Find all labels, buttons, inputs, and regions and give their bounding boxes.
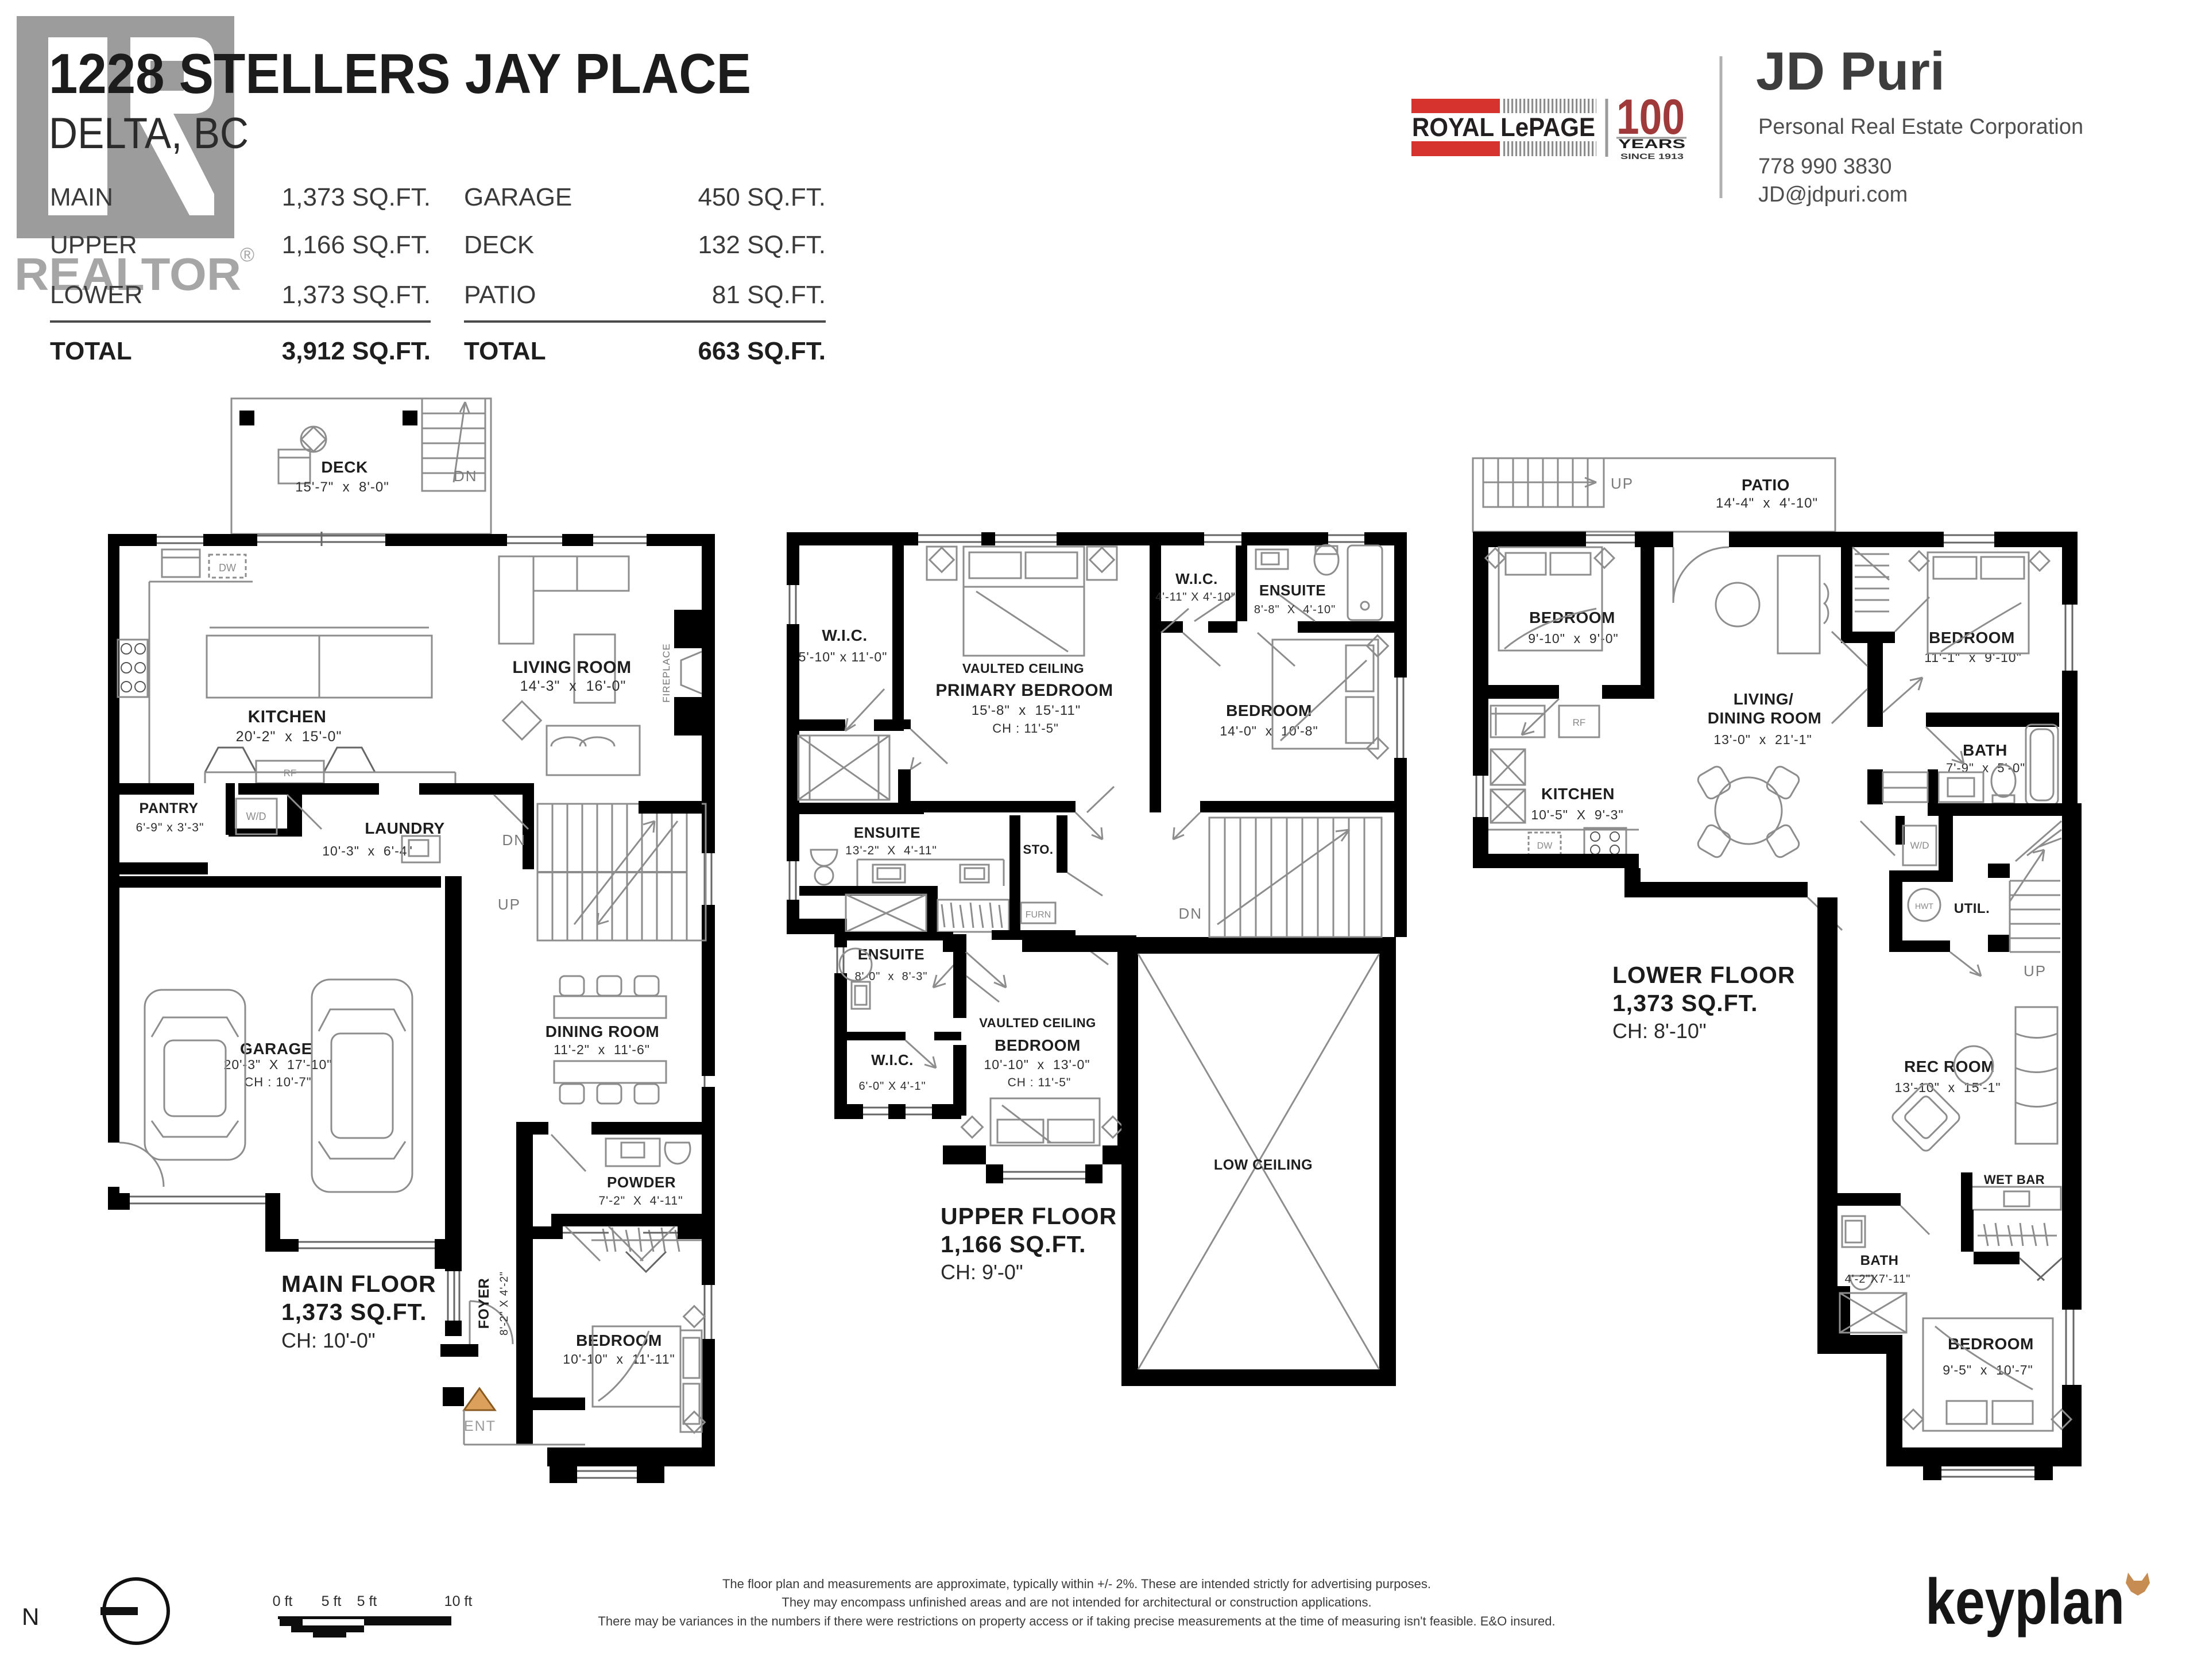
- svg-text:0 ft: 0 ft: [273, 1593, 293, 1609]
- svg-text:MAIN: MAIN: [50, 183, 113, 211]
- svg-text:JD@jdpuri.com: JD@jdpuri.com: [1758, 183, 1908, 207]
- svg-text:DECK: DECK: [321, 458, 367, 476]
- svg-text:DW: DW: [1537, 841, 1553, 851]
- svg-text:FURN: FURN: [1026, 910, 1051, 920]
- svg-text:N: N: [22, 1603, 39, 1630]
- svg-text:CH : 11'-5": CH : 11'-5": [992, 721, 1059, 736]
- svg-text:LOWER: LOWER: [50, 281, 142, 309]
- svg-text:®: ®: [240, 244, 254, 266]
- svg-text:There may be variances in the: There may be variances in the numbers if…: [598, 1614, 1555, 1628]
- svg-text:1228 STELLERS JAY PLACE: 1228 STELLERS JAY PLACE: [49, 42, 751, 105]
- svg-text:5 ft: 5 ft: [357, 1593, 377, 1609]
- svg-text:1,166 SQ.FT.: 1,166 SQ.FT.: [282, 231, 431, 259]
- svg-text:1,166 SQ.FT.: 1,166 SQ.FT.: [941, 1231, 1086, 1257]
- svg-text:keyplan: keyplan: [1925, 1566, 2125, 1638]
- svg-text:DW: DW: [219, 562, 236, 574]
- svg-text:PATIO: PATIO: [1742, 476, 1790, 494]
- svg-text:PANTRY: PANTRY: [140, 800, 199, 816]
- svg-text:1,373 SQ.FT.: 1,373 SQ.FT.: [282, 183, 431, 211]
- svg-text:The floor plan and measurement: The floor plan and measurements are appr…: [722, 1577, 1431, 1591]
- svg-text:6'-0" X 4'-1": 6'-0" X 4'-1": [858, 1080, 926, 1093]
- svg-text:FIREPLACE: FIREPLACE: [661, 643, 672, 702]
- svg-text:81 SQ.FT.: 81 SQ.FT.: [712, 281, 826, 309]
- svg-text:BEDROOM: BEDROOM: [576, 1331, 662, 1349]
- svg-text:11'-2" x 11'-6": 11'-2" x 11'-6": [554, 1042, 650, 1057]
- svg-text:8'-2" X 4'-2": 8'-2" X 4'-2": [498, 1271, 510, 1336]
- svg-text:UPPER FLOOR: UPPER FLOOR: [941, 1203, 1117, 1229]
- svg-text:BATH: BATH: [1963, 741, 2007, 759]
- svg-text:UPPER: UPPER: [50, 231, 137, 259]
- svg-text:TOTAL: TOTAL: [50, 337, 132, 365]
- svg-text:CH: 8'-10": CH: 8'-10": [1612, 1019, 1707, 1043]
- svg-text:W.I.C.: W.I.C.: [871, 1051, 914, 1069]
- svg-text:10 ft: 10 ft: [444, 1593, 473, 1609]
- svg-text:15'-8" x 15'-11": 15'-8" x 15'-11": [972, 703, 1081, 718]
- svg-text:1,373 SQ.FT.: 1,373 SQ.FT.: [1612, 990, 1758, 1016]
- svg-text:Personal Real Estate Corporati: Personal Real Estate Corporation: [1758, 115, 2083, 139]
- svg-text:450 SQ.FT.: 450 SQ.FT.: [698, 183, 826, 211]
- svg-text:LOWER FLOOR: LOWER FLOOR: [1612, 962, 1795, 988]
- svg-text:5 ft: 5 ft: [322, 1593, 342, 1609]
- svg-text:10'-5" X 9'-3": 10'-5" X 9'-3": [1531, 807, 1623, 822]
- svg-text:4'-2"X7'-11": 4'-2"X7'-11": [1845, 1273, 1911, 1286]
- svg-text:CH : 11'-5": CH : 11'-5": [1008, 1076, 1071, 1089]
- svg-text:MAIN FLOOR: MAIN FLOOR: [281, 1271, 436, 1297]
- svg-text:HWT: HWT: [1915, 901, 1933, 911]
- svg-text:7'-2" X 4'-11": 7'-2" X 4'-11": [598, 1194, 683, 1207]
- svg-text:SINCE 1913: SINCE 1913: [1620, 152, 1684, 161]
- svg-text:DELTA, BC: DELTA, BC: [49, 109, 249, 158]
- svg-text:UP: UP: [1611, 475, 1634, 492]
- svg-text:UTIL.: UTIL.: [1954, 901, 1990, 916]
- svg-text:DN: DN: [454, 467, 478, 485]
- svg-text:1,373 SQ.FT.: 1,373 SQ.FT.: [281, 1299, 427, 1325]
- svg-text:RF: RF: [1573, 717, 1586, 728]
- svg-text:BEDROOM: BEDROOM: [1226, 702, 1312, 719]
- svg-text:KITCHEN: KITCHEN: [248, 707, 327, 726]
- svg-text:POWDER: POWDER: [607, 1174, 676, 1191]
- svg-text:UP: UP: [498, 896, 521, 913]
- svg-text:DECK: DECK: [464, 231, 534, 259]
- svg-text:9'-5" x 10'-7": 9'-5" x 10'-7": [1943, 1362, 2033, 1377]
- svg-text:ENSUITE: ENSUITE: [854, 824, 920, 841]
- svg-text:CH: 10'-0": CH: 10'-0": [281, 1329, 376, 1352]
- svg-text:13'-0" x 21'-1": 13'-0" x 21'-1": [1713, 732, 1812, 747]
- svg-text:STO.: STO.: [1023, 842, 1054, 857]
- svg-text:LIVING ROOM: LIVING ROOM: [512, 658, 631, 677]
- svg-text:ENSUITE: ENSUITE: [1259, 582, 1326, 599]
- svg-text:ENT: ENT: [464, 1418, 496, 1434]
- svg-text:W.I.C.: W.I.C.: [822, 626, 867, 644]
- svg-text:CH : 10'-7": CH : 10'-7": [244, 1075, 311, 1089]
- svg-text:3,912 SQ.FT.: 3,912 SQ.FT.: [282, 337, 431, 365]
- svg-text:DINING ROOM: DINING ROOM: [1708, 709, 1821, 727]
- svg-text:YEARS: YEARS: [1618, 137, 1685, 151]
- svg-text:CH: 9'-0": CH: 9'-0": [941, 1260, 1023, 1284]
- svg-text:20'-3" X 17'-10": 20'-3" X 17'-10": [224, 1057, 332, 1072]
- svg-text:14'-4" x 4'-10": 14'-4" x 4'-10": [1716, 496, 1818, 511]
- svg-text:10'-3" x 6'-4": 10'-3" x 6'-4": [322, 843, 412, 858]
- svg-text:4'-11" X 4'-10": 4'-11" X 4'-10": [1155, 591, 1236, 603]
- svg-text:DN: DN: [502, 831, 526, 849]
- svg-text:VAULTED CEILING: VAULTED CEILING: [979, 1016, 1096, 1030]
- svg-text:6'-9" x 3'-3": 6'-9" x 3'-3": [136, 821, 204, 834]
- svg-text:They may encompass unfinished: They may encompass unfinished areas and …: [782, 1595, 1371, 1609]
- svg-text:DINING ROOM: DINING ROOM: [546, 1023, 659, 1040]
- svg-text:14'-3" x 16'-0": 14'-3" x 16'-0": [520, 678, 626, 694]
- svg-text:20'-2" x 15'-0": 20'-2" x 15'-0": [236, 729, 342, 745]
- svg-text:LOW CEILING: LOW CEILING: [1214, 1157, 1313, 1173]
- svg-text:VAULTED CEILING: VAULTED CEILING: [962, 661, 1084, 676]
- svg-text:132 SQ.FT.: 132 SQ.FT.: [698, 231, 826, 259]
- svg-text:5'-10" x 11'-0": 5'-10" x 11'-0": [799, 649, 888, 664]
- svg-text:UP: UP: [2024, 962, 2047, 980]
- svg-text:JD Puri: JD Puri: [1756, 41, 1945, 101]
- svg-text:10'-10" x 13'-0": 10'-10" x 13'-0": [984, 1057, 1090, 1072]
- svg-text:BEDROOM: BEDROOM: [1948, 1335, 2034, 1353]
- svg-text:LAUNDRY: LAUNDRY: [365, 819, 444, 837]
- svg-text:BEDROOM: BEDROOM: [995, 1036, 1081, 1054]
- svg-text:PATIO: PATIO: [464, 281, 536, 309]
- svg-text:RF: RF: [284, 768, 297, 779]
- svg-text:1,373 SQ.FT.: 1,373 SQ.FT.: [282, 281, 431, 309]
- svg-text:KITCHEN: KITCHEN: [1541, 785, 1615, 803]
- svg-text:W.I.C.: W.I.C.: [1175, 570, 1218, 587]
- svg-text:GARAGE: GARAGE: [464, 183, 572, 211]
- svg-text:BATH: BATH: [1860, 1253, 1899, 1268]
- svg-text:W/D: W/D: [1910, 840, 1929, 851]
- svg-text:8'-8" X 4'-10": 8'-8" X 4'-10": [1254, 603, 1336, 616]
- svg-text:GARAGE: GARAGE: [240, 1040, 312, 1058]
- svg-text:11'-1" x 9'-10": 11'-1" x 9'-10": [1924, 650, 2022, 665]
- svg-text:TOTAL: TOTAL: [464, 337, 546, 365]
- svg-text:9'-10" x 9'-0": 9'-10" x 9'-0": [1528, 631, 1618, 646]
- svg-text:10'-10" x 11'-11": 10'-10" x 11'-11": [563, 1352, 675, 1367]
- svg-text:14'-0" x 10'-8": 14'-0" x 10'-8": [1220, 723, 1318, 738]
- svg-text:WET BAR: WET BAR: [1984, 1172, 2045, 1187]
- svg-text:FOYER: FOYER: [476, 1278, 492, 1329]
- svg-text:LIVING/: LIVING/: [1734, 690, 1794, 708]
- svg-text:ROYAL LePAGE: ROYAL LePAGE: [1412, 113, 1595, 142]
- svg-text:PRIMARY BEDROOM: PRIMARY BEDROOM: [935, 681, 1113, 700]
- svg-text:13'-2" X 4'-11": 13'-2" X 4'-11": [845, 844, 937, 857]
- svg-text:15'-7" x 8'-0": 15'-7" x 8'-0": [295, 479, 389, 495]
- svg-text:DN: DN: [1178, 905, 1202, 922]
- svg-text:778 990 3830: 778 990 3830: [1758, 154, 1891, 179]
- svg-text:REC ROOM: REC ROOM: [1904, 1058, 1995, 1075]
- svg-text:663 SQ.FT.: 663 SQ.FT.: [698, 337, 826, 365]
- svg-text:W/D: W/D: [246, 811, 266, 822]
